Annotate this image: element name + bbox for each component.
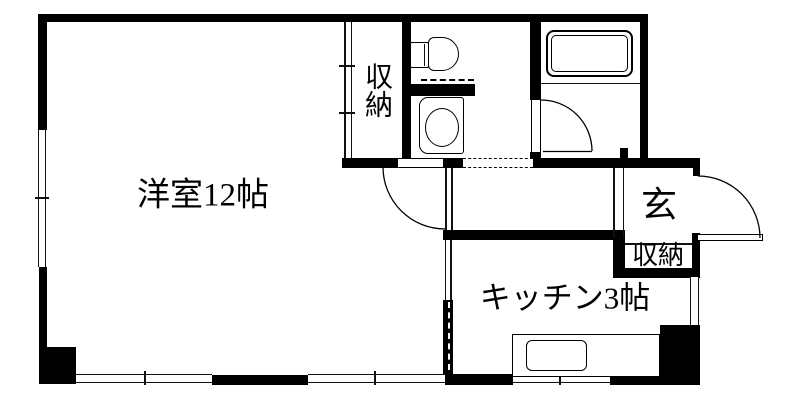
entrance-closet-label: 収納 bbox=[632, 243, 684, 269]
main-room-door-arc bbox=[383, 167, 445, 229]
toilet-icon bbox=[410, 42, 429, 68]
kitchen-sink-icon bbox=[526, 340, 587, 371]
entrance-door-arc bbox=[698, 176, 760, 238]
kitchen-label: キッチン3帖 bbox=[480, 283, 651, 314]
door-arcs bbox=[0, 0, 800, 405]
entrance-label: 玄 bbox=[641, 187, 677, 223]
bathtub-inner bbox=[551, 35, 628, 72]
closet-main-label: 収納 bbox=[362, 62, 390, 118]
bath-door-arc bbox=[541, 100, 592, 151]
toilet-tank-line bbox=[424, 44, 426, 66]
washbasin-bowl bbox=[425, 108, 459, 147]
floor-plan: 洋室12帖 収納 キッチン3帖 玄 収納 bbox=[0, 0, 800, 405]
main-room-label: 洋室12帖 bbox=[137, 180, 269, 213]
